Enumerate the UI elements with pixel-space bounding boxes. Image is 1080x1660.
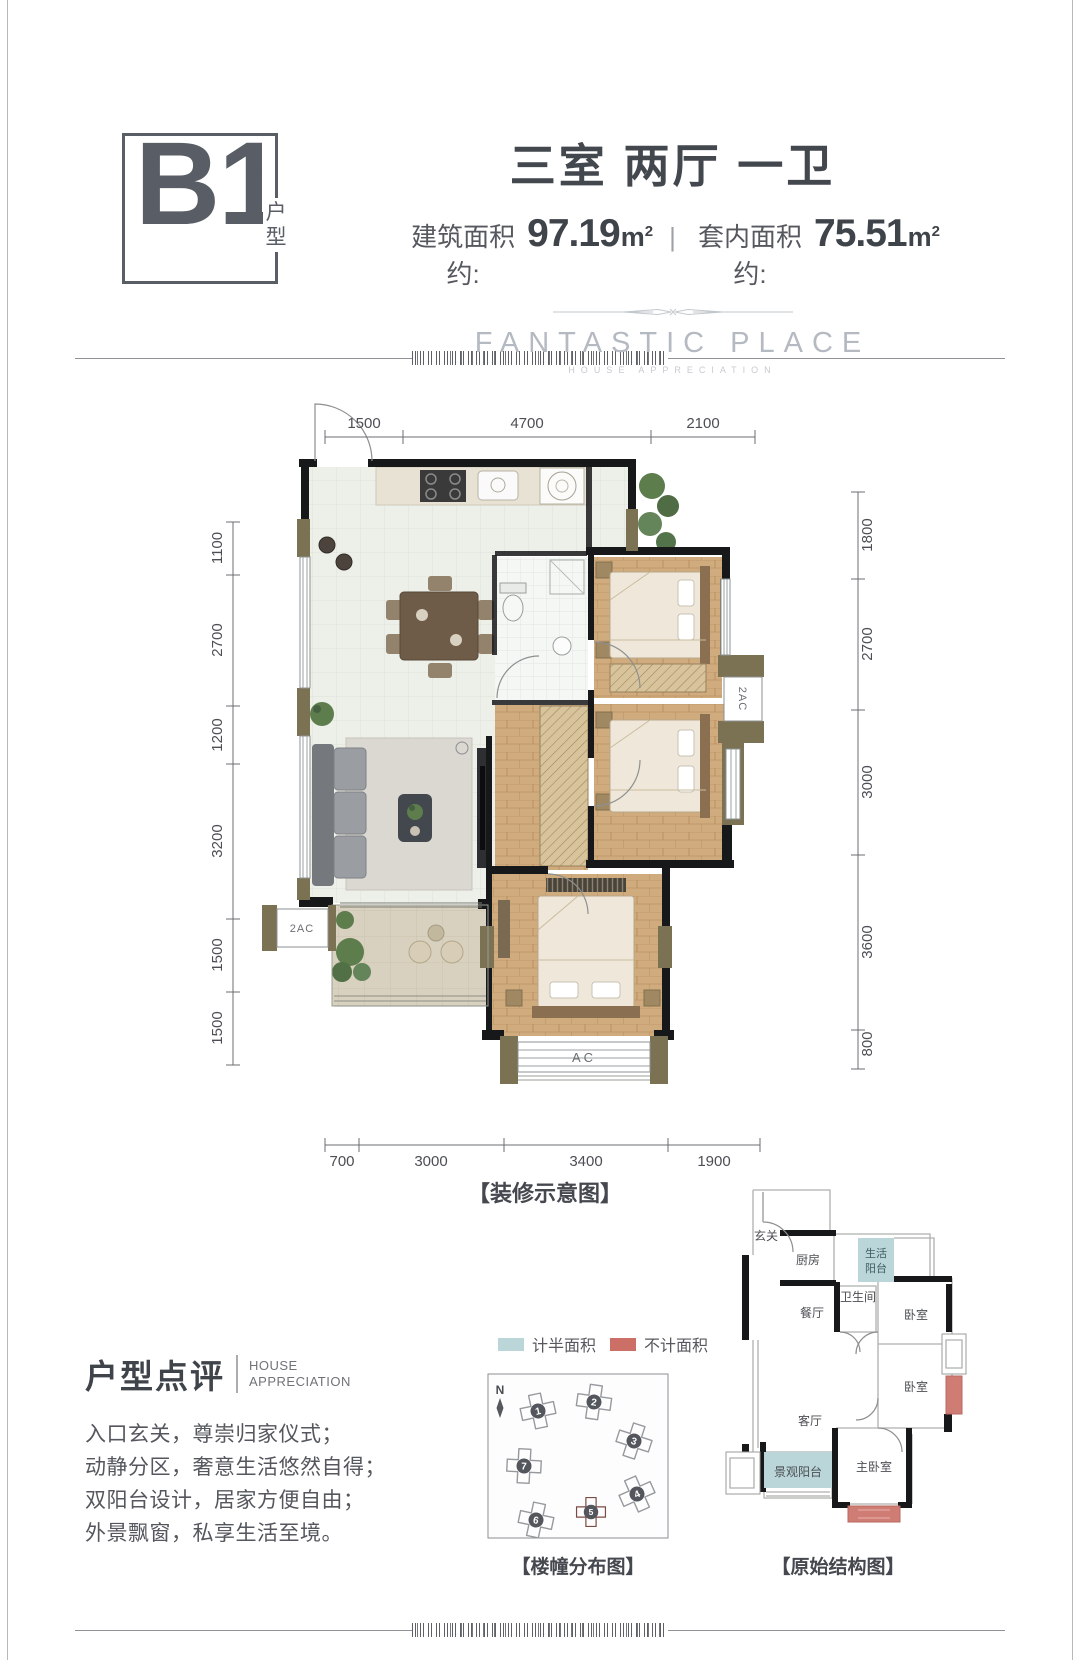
svg-text:2700: 2700 (209, 623, 226, 656)
svg-text:1200: 1200 (209, 718, 226, 751)
svg-text:3600: 3600 (859, 925, 876, 958)
svg-text:1500: 1500 (209, 1011, 226, 1044)
review-heading-divider (236, 1355, 238, 1393)
structure-plan: 玄关 厨房 生活 阳台 卫生间 餐厅 卧室 卧室 客厅 景观阳台 主卧室 (726, 1190, 966, 1522)
svg-text:7: 7 (521, 1461, 528, 1472)
area-legend: 计半面积 不计面积 (498, 1332, 708, 1356)
svg-text:客厅: 客厅 (798, 1413, 822, 1428)
svg-text:1900: 1900 (697, 1153, 730, 1170)
svg-text:厨房: 厨房 (796, 1252, 820, 1267)
hall-wardrobe (540, 706, 588, 866)
svg-text:景观阳台: 景观阳台 (774, 1464, 822, 1479)
excluded-bay-bottom (848, 1506, 900, 1522)
svg-text:2AC: 2AC (736, 687, 748, 711)
review-heading: 户型点评 (85, 1350, 225, 1398)
svg-text:卧室: 卧室 (904, 1379, 928, 1394)
excluded-area-label: 不计面积 (644, 1332, 708, 1356)
review-lines: 入口玄关，尊崇归家仪式； 动静分区，奢意生活悠然自得； 双阳台设计，居家方便自由… (85, 1418, 405, 1550)
review-heading-row: 户型点评 HOUSE APPRECIATION (85, 1350, 405, 1398)
review-line: 外景飘窗，私享生活至境。 (85, 1517, 405, 1550)
decorated-floor-plan: 2AC 2AC AC 1500 4700 2100 1100 27 (209, 404, 876, 1170)
floorplan-poster: B1 户型 三室 两厅 一卫 建筑面积约: 97.19 m2 | 套内面积约: … (0, 0, 1080, 1660)
house-review: 户型点评 HOUSE APPRECIATION 入口玄关，尊崇归家仪式； 动静分… (85, 1350, 405, 1550)
site-map: N 1 2 3 4 5 (488, 1374, 668, 1540)
svg-text:餐厅: 餐厅 (800, 1305, 824, 1320)
svg-text:3200: 3200 (209, 824, 226, 857)
svg-text:阳台: 阳台 (865, 1261, 887, 1275)
svg-text:1500: 1500 (209, 938, 226, 971)
svg-text:生活: 生活 (865, 1246, 887, 1260)
site-map-caption: 【楼幢分布图】 (478, 1552, 678, 1579)
svg-text:2700: 2700 (859, 627, 876, 660)
svg-text:2100: 2100 (686, 415, 719, 432)
svg-text:主卧室: 主卧室 (856, 1459, 892, 1474)
life-balcony-area (858, 1238, 894, 1282)
review-line: 动静分区，奢意生活悠然自得； (85, 1451, 405, 1484)
planting-recess (638, 473, 679, 552)
svg-text:卧室: 卧室 (904, 1307, 928, 1322)
review-heading-en: HOUSE APPRECIATION (249, 1358, 351, 1390)
svg-text:3000: 3000 (414, 1153, 447, 1170)
svg-text:4700: 4700 (510, 415, 543, 432)
north-label: N (496, 1383, 505, 1397)
main-plan-caption: 【装修示意图】 (415, 1176, 675, 1208)
svg-text:700: 700 (329, 1153, 354, 1170)
bedroom1-furniture (596, 562, 710, 692)
legend-excluded-area: 不计面积 (610, 1332, 708, 1356)
review-line: 双阳台设计，居家方便自由； (85, 1484, 405, 1517)
kitchen-counter (376, 467, 588, 505)
half-area-label: 计半面积 (532, 1332, 596, 1356)
ac-platform-left: 2AC (262, 905, 336, 951)
svg-text:1100: 1100 (209, 532, 226, 564)
excluded-area-swatch (610, 1338, 636, 1351)
svg-text:玄关: 玄关 (754, 1228, 778, 1243)
svg-text:3000: 3000 (859, 765, 876, 798)
structure-plan-caption: 【原始结构图】 (738, 1552, 938, 1579)
structure-room-labels: 玄关 厨房 生活 阳台 卫生间 餐厅 卧室 卧室 客厅 景观阳台 主卧室 (754, 1228, 928, 1479)
svg-text:5: 5 (589, 1507, 594, 1517)
ac-platform-bottom-label: AC (572, 1050, 596, 1065)
svg-text:1800: 1800 (859, 518, 876, 551)
svg-text:3400: 3400 (569, 1153, 602, 1170)
svg-text:2AC: 2AC (290, 923, 314, 935)
svg-text:卫生间: 卫生间 (840, 1290, 876, 1304)
svg-text:800: 800 (859, 1031, 876, 1056)
half-area-swatch (498, 1338, 524, 1351)
svg-text:1500: 1500 (347, 415, 380, 432)
legend-half-area: 计半面积 (498, 1332, 596, 1356)
ac-platform-right: 2AC (724, 677, 762, 721)
review-line: 入口玄关，尊崇归家仪式； (85, 1418, 405, 1451)
excluded-bay-right (946, 1376, 962, 1414)
bathroom-floor (495, 557, 588, 703)
